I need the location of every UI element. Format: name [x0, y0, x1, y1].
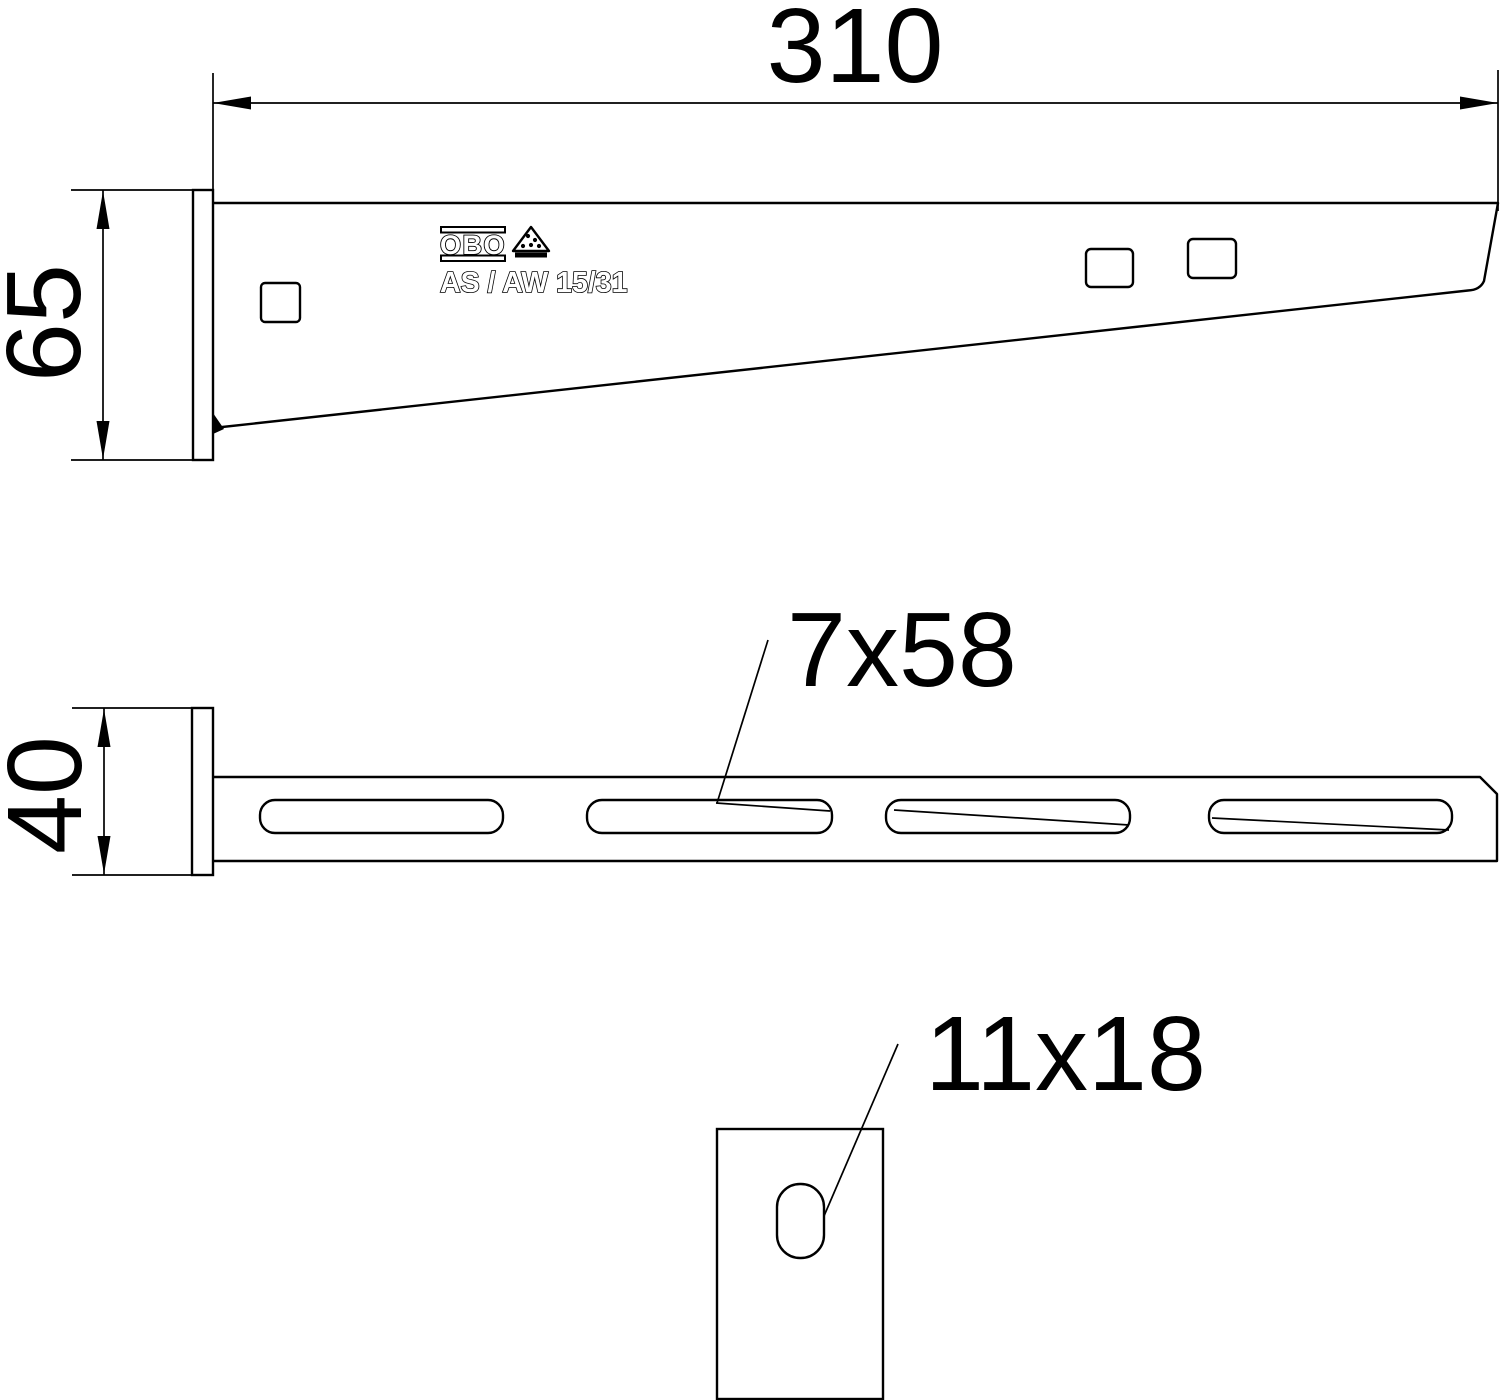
obo-triangle-icon	[513, 227, 549, 258]
arrowhead-left	[213, 97, 251, 110]
slot-dimension-label: 7x58	[787, 591, 1017, 709]
arrowhead-right	[1460, 97, 1498, 110]
wall-plate-front	[717, 1129, 883, 1399]
technical-drawing-canvas: OBO AS / AW 15/31 310	[0, 0, 1500, 1400]
side-elevation-view: OBO AS / AW 15/31 310	[0, 0, 1498, 460]
triangle-dot	[537, 244, 541, 248]
bracket-technical-drawing: OBO AS / AW 15/31 310	[0, 0, 1500, 1400]
slot-callout: 7x58	[717, 591, 1017, 803]
arrowhead-bottom	[97, 421, 110, 459]
oblong-hole	[777, 1184, 824, 1258]
front-view: 11x18	[717, 995, 1206, 1399]
plan-view: 40 7x58	[0, 591, 1497, 875]
square-hole-left	[261, 283, 300, 322]
slot-hole-2	[587, 800, 832, 833]
dimension-40-label: 40	[0, 736, 104, 854]
bracket-arm-profile	[213, 203, 1498, 428]
triangle-outline	[513, 227, 549, 251]
obo-logo: OBO	[440, 227, 506, 261]
square-hole-middle	[1086, 249, 1133, 287]
wall-plate-side	[193, 190, 213, 460]
dimension-65-label: 65	[0, 264, 103, 382]
arrowhead-top	[97, 191, 110, 229]
hole-callout: 11x18	[824, 995, 1206, 1216]
square-hole-right	[1188, 239, 1236, 278]
triangle-dot	[529, 243, 533, 247]
hole-dimension-label: 11x18	[925, 995, 1206, 1113]
leader-line	[717, 640, 768, 803]
obo-logo-bottom-bar	[441, 256, 505, 262]
dimension-65: 65	[0, 190, 213, 460]
triangle-base-bar	[515, 253, 547, 258]
weld-seam	[213, 413, 224, 434]
product-marking-text: AS / AW 15/31	[440, 267, 628, 299]
dimension-310: 310	[213, 0, 1498, 211]
dimension-310-label: 310	[767, 0, 944, 105]
triangle-dot	[526, 234, 530, 238]
slot-4-inner-edge	[1212, 818, 1449, 830]
wall-plate-plan	[192, 708, 213, 875]
triangle-dot	[533, 238, 537, 242]
triangle-dot	[521, 244, 525, 248]
slot-hole-1	[260, 800, 503, 833]
bracket-arm-plan	[213, 777, 1497, 861]
dimension-40: 40	[0, 708, 213, 875]
slot-2-inner-edge	[716, 803, 830, 811]
slot-3-inner-edge	[894, 810, 1129, 825]
